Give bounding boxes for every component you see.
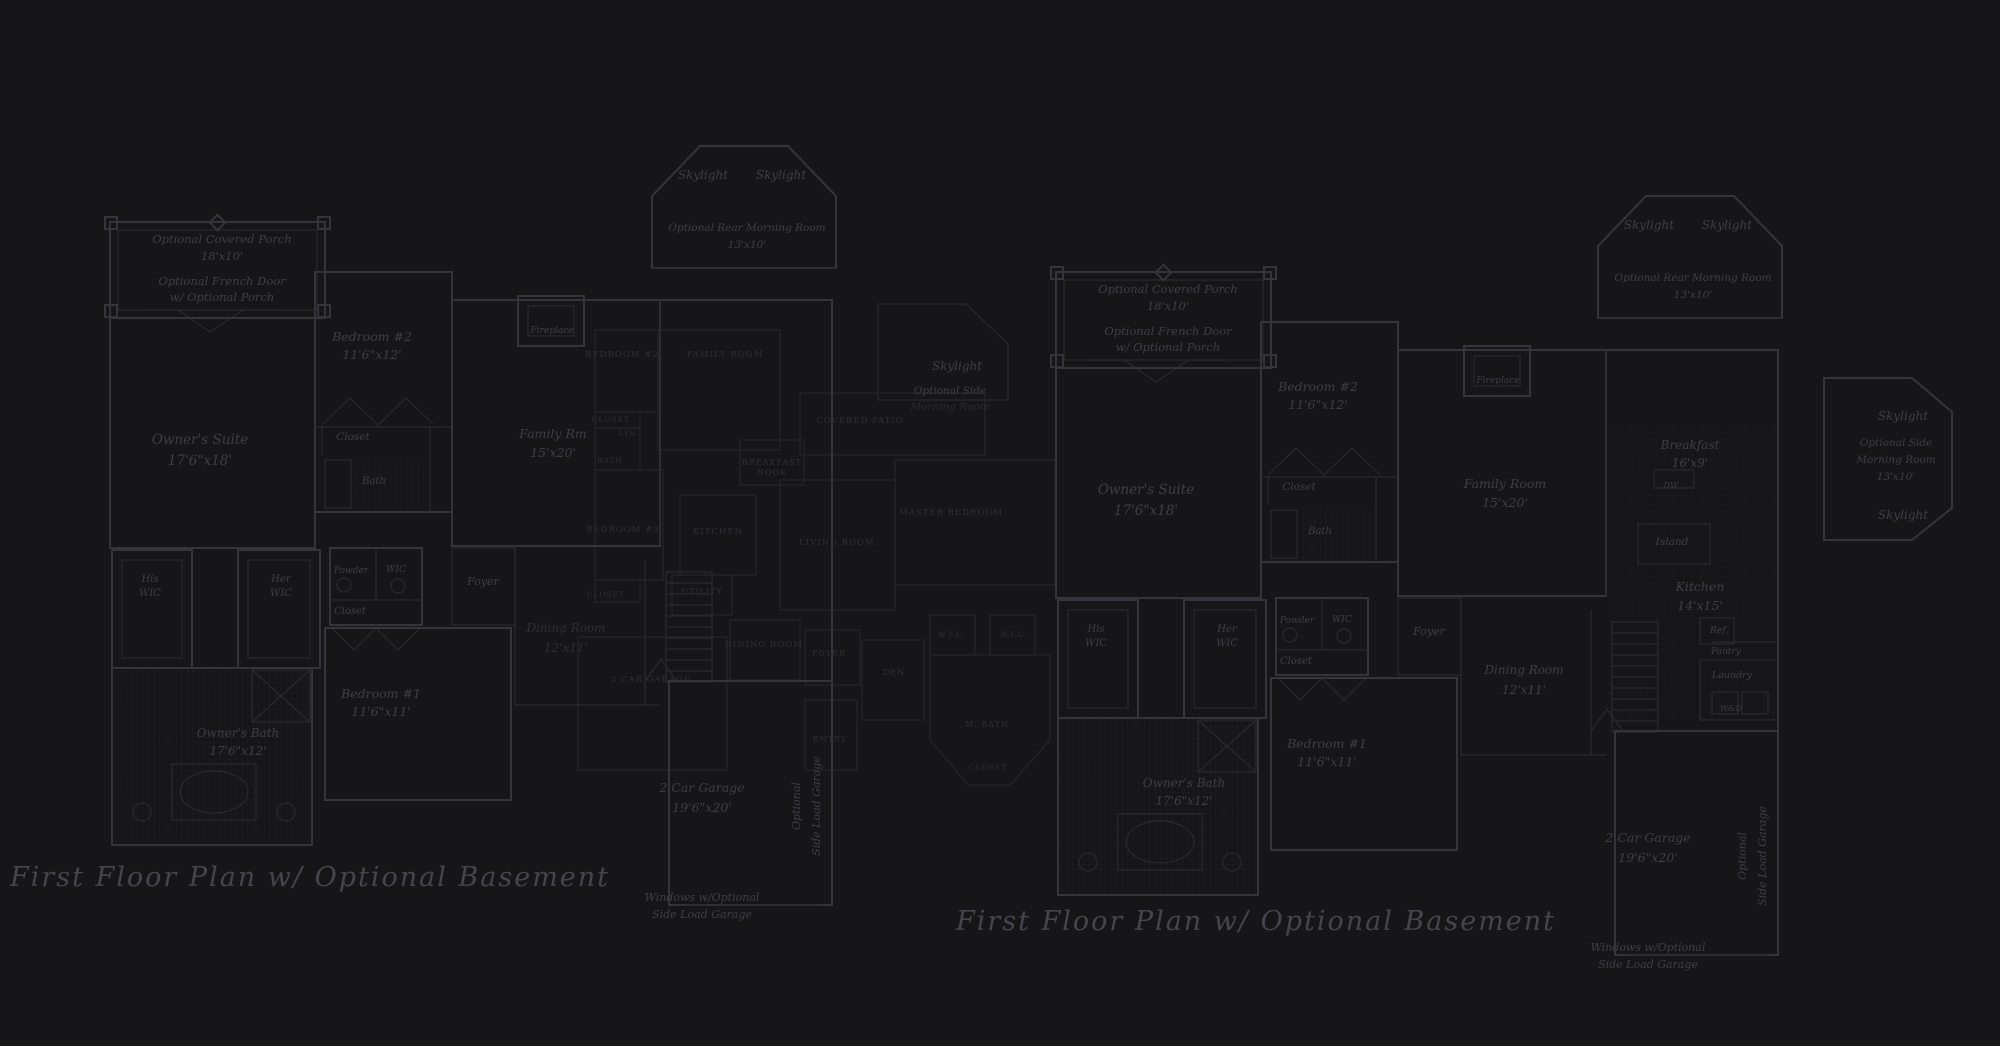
left-windows-side-load-line1: Windows w/Optional: [645, 891, 760, 904]
bg-closet-2: CLOSET: [587, 590, 625, 599]
right-dining-room-line1: Dining Room: [1483, 663, 1563, 677]
right-family-room-line2: 15'x20': [1482, 495, 1528, 510]
right-closet-bedroom2: Closet: [1282, 481, 1316, 493]
left-his-wic-line2: WIC: [139, 588, 161, 599]
background-floor-plan: BEDROOM #2FAMILY ROOMCLOSETLIN.BATHBREAK…: [578, 330, 1055, 785]
left-optional-covered-porch-line2: 18'x10': [201, 249, 243, 263]
right-optional-rear-morning-room-line1: Optional Rear Morning Room: [1614, 272, 1771, 284]
right-owners-suite-line2: 17'6"x18': [1114, 503, 1178, 519]
left-his-wic-line1: His: [140, 574, 158, 585]
right-optional-french-door-line2: w/ Optional Porch: [1116, 340, 1221, 354]
left-owners-bath-line1: Owner's Bath: [197, 726, 279, 740]
right-family-room-line1: Family Room: [1463, 476, 1546, 491]
right-bath-bedroom2: Bath: [1307, 526, 1332, 537]
left-fireplace: Fireplace: [529, 326, 573, 336]
right-wd: W&D: [1720, 704, 1742, 713]
left-her-wic-line2: WIC: [270, 588, 292, 599]
left-bedroom-1-line2: 11'6"x11': [351, 704, 410, 719]
right-windows-side-load-line1: Windows w/Optional: [1591, 941, 1706, 954]
right-kitchen-line2: 14'x15': [1677, 598, 1723, 613]
right-wic-hall: WIC: [1332, 615, 1352, 625]
left-floor-plan: Optional Covered Porch18'x10'Optional Fr…: [9, 146, 1008, 921]
left-owners-suite-line2: 17'6"x18': [168, 453, 232, 469]
bg-master-bedroom-outline: [895, 460, 1055, 585]
bg-entry: ENTRY: [813, 735, 847, 744]
right-foyer: Foyer: [1412, 625, 1445, 638]
right-optional-side-load-garage-line1: Optional: [1736, 832, 1749, 880]
bg-master-bedroom: MASTER BEDROOM: [899, 508, 1003, 518]
left-bedroom-1-line1: Bedroom #1: [340, 686, 421, 701]
bg-breakfast-line1: BREAKFAST: [742, 458, 802, 467]
right-ref: Ref.: [1709, 626, 1728, 636]
bg-den: DEN: [883, 668, 905, 677]
right-skylight-rear-right: Skylight: [1702, 218, 1752, 232]
right-powder: Powder: [1279, 616, 1315, 626]
right-his-wic-line1: His: [1086, 624, 1104, 635]
bg-bedroom-3: BEDROOM #3: [586, 525, 660, 535]
bg-bedroom-2-outline: [595, 330, 658, 412]
right-her-wic-line1: Her: [1216, 624, 1238, 635]
right-windows-side-load-line2: Side Load Garage: [1598, 958, 1698, 971]
left-skylight-rear-right: Skylight: [756, 168, 806, 182]
left-optional-french-door-line1: Optional French Door: [158, 274, 287, 288]
bg-bedroom-2: BEDROOM #2: [585, 350, 659, 360]
bg-dining-room-outline: [730, 620, 800, 680]
background-plan-geometry: [578, 330, 1055, 785]
left-closet-hall: Closet: [334, 606, 367, 617]
right-optional-rear-morning-room-line2: 13'x10': [1674, 289, 1712, 301]
right-skylight-rear-left: Skylight: [1624, 218, 1674, 232]
right-dining-room-line2: 12'x11': [1502, 683, 1546, 697]
right-bedroom-1-line2: 11'6"x11': [1297, 754, 1356, 769]
left-closet-bedroom2: Closet: [336, 431, 370, 443]
left-optional-side-load-garage-line2: Side Load Garage: [810, 756, 823, 856]
floor-plans-drawing: BEDROOM #2FAMILY ROOMCLOSETLIN.BATHBREAK…: [0, 0, 2000, 1046]
right-optional-covered-porch-line2: 18'x10': [1147, 299, 1189, 313]
right-his-wic-line2: WIC: [1085, 638, 1107, 649]
right-breakfast-line2: 16'x9': [1672, 456, 1708, 470]
left-garage-line2: 19'6"x20': [672, 800, 731, 815]
left-skylight-rear-left: Skylight: [678, 168, 728, 182]
bg-kitchen: KITCHEN: [693, 527, 743, 537]
left-her-wic-line1: Her: [270, 574, 292, 585]
left-family-rm-line2: 15'x20': [530, 445, 576, 460]
left-windows-side-load-line2: Side Load Garage: [652, 908, 752, 921]
right-owners-suite-line1: Owner's Suite: [1098, 482, 1194, 498]
left-optional-side-morning-room-line2: Morning Room: [909, 401, 990, 413]
left-optional-rear-morning-room-line1: Optional Rear Morning Room: [668, 222, 825, 234]
bg-foyer: FOYER: [812, 649, 846, 658]
right-kitchen-line1: Kitchen: [1675, 579, 1725, 594]
right-breakfast-line1: Breakfast: [1660, 438, 1720, 452]
right-bedroom-1-line1: Bedroom #1: [1286, 736, 1367, 751]
bg-lin: LIN.: [619, 429, 639, 438]
left-optional-french-door-line2: w/ Optional Porch: [170, 290, 275, 304]
bg-breakfast-line2: NOOK: [757, 468, 787, 477]
left-bedroom-2-line2: 11'6"x12': [342, 347, 401, 362]
left-bath-bedroom2: Bath: [361, 476, 386, 487]
background-plan-labels: BEDROOM #2FAMILY ROOMCLOSETLIN.BATHBREAK…: [585, 350, 1028, 772]
right-optional-side-morning-room-line2: Morning Room: [1855, 454, 1936, 466]
left-bedroom-2-line1: Bedroom #2: [331, 329, 412, 344]
right-plan-caption: First Floor Plan w/ Optional Basement: [955, 906, 1556, 937]
right-skylight-side-bottom: Skylight: [1878, 508, 1928, 522]
right-island: Island: [1655, 536, 1689, 548]
left-optional-side-load-garage-line1: Optional: [790, 782, 803, 830]
bg-family-room: FAMILY ROOM: [687, 350, 764, 360]
right-owners-bath-line2: 17'6"x12': [1155, 794, 1212, 808]
right-optional-side-morning-room-line1: Optional Side: [1860, 437, 1932, 449]
bg-family-room-outline: [658, 330, 780, 450]
left-powder: Powder: [333, 566, 369, 576]
blueprint-canvas: BEDROOM #2FAMILY ROOMCLOSETLIN.BATHBREAK…: [0, 0, 2000, 1046]
right-fireplace: Fireplace: [1475, 376, 1519, 386]
left-garage-line1: 2 Car Garage: [658, 780, 744, 795]
left-owners-suite-line1: Owner's Suite: [152, 432, 248, 448]
right-garage-line2: 19'6"x20': [1618, 850, 1677, 865]
left-plan-caption: First Floor Plan w/ Optional Basement: [9, 862, 610, 893]
right-optional-side-morning-room-line3: 13'x10': [1877, 471, 1915, 483]
left-dining-room-line2: 12'x11': [544, 641, 588, 655]
left-wic-hall: WIC: [386, 565, 406, 575]
right-optional-french-door-line1: Optional French Door: [1104, 324, 1233, 338]
right-bedroom-2-line2: 11'6"x12': [1288, 397, 1347, 412]
right-laundry: Laundry: [1711, 670, 1753, 681]
bg-closet-1: CLOSET: [592, 415, 630, 424]
right-floor-plan: Optional Covered Porch18'x10'Optional Fr…: [955, 196, 1952, 971]
left-foyer: Foyer: [466, 575, 499, 588]
right-optional-covered-porch-line1: Optional Covered Porch: [1098, 282, 1238, 296]
bg-covered-patio: COVERED PATIO: [816, 416, 903, 426]
bg-dining-room: DINING ROOM: [725, 640, 803, 650]
right-owners-bath-line1: Owner's Bath: [1143, 776, 1225, 790]
left-owners-bath-line2: 17'6"x12': [209, 744, 266, 758]
bg-bath: BATH: [597, 456, 623, 465]
left-optional-covered-porch-line1: Optional Covered Porch: [152, 232, 292, 246]
right-dw: DW: [1663, 481, 1679, 490]
right-optional-side-load-garage-line2: Side Load Garage: [1756, 806, 1769, 906]
bg-wic-2: W.I.C.: [1000, 630, 1028, 639]
right-bedroom-2-line1: Bedroom #2: [1277, 379, 1358, 394]
left-skylight-side: Skylight: [932, 359, 982, 373]
right-closet-hall: Closet: [1280, 656, 1313, 667]
right-pantry: Pantry: [1710, 647, 1742, 657]
left-optional-rear-morning-room-line2: 13'x10': [728, 239, 766, 251]
bg-utility: UTILITY: [681, 587, 722, 596]
bg-living-room: LIVING ROOM: [799, 538, 874, 548]
left-family-rm-line1: Family Rm: [518, 426, 586, 441]
bg-wic-1: W.I.C.: [938, 630, 966, 639]
bg-den-outline: [862, 640, 924, 720]
right-garage-line1: 2 Car Garage: [1604, 830, 1690, 845]
bg-m-bath: M. BATH: [965, 720, 1009, 729]
left-optional-side-morning-room-line1: Optional Side: [914, 385, 986, 397]
right-her-wic-line2: WIC: [1216, 638, 1238, 649]
left-dining-room-line1: Dining Room: [525, 621, 605, 635]
right-skylight-side-top: Skylight: [1878, 409, 1928, 423]
bg-closet-3: CLOSET: [969, 763, 1007, 772]
bg-garage-outline: [578, 637, 727, 770]
